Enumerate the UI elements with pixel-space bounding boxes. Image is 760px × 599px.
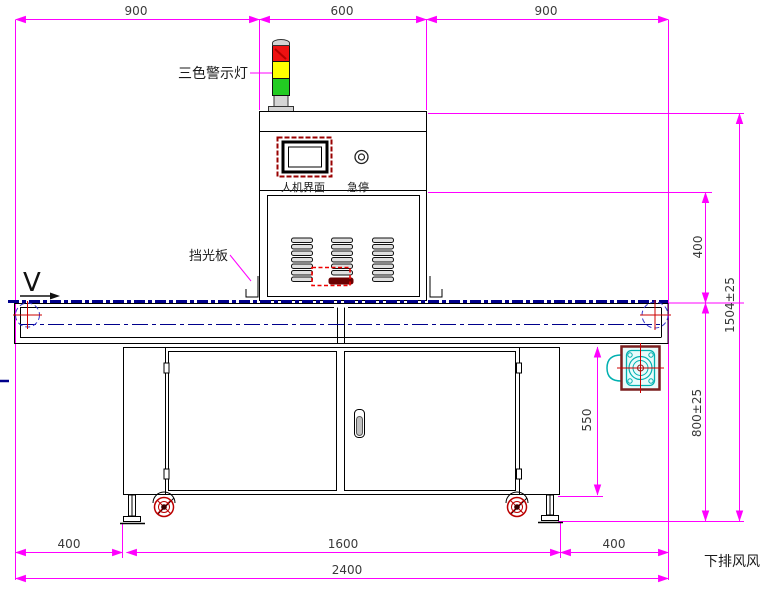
left-roller xyxy=(13,301,42,329)
lamp-green xyxy=(273,79,290,96)
tricolor-warning-light xyxy=(269,40,294,112)
dimension-labels: 900 600 900 400 1504±25 800±25 550 400 1… xyxy=(58,4,737,577)
hinge xyxy=(517,469,522,479)
light-shield-label: 挡光板 xyxy=(189,249,228,264)
dim-top-right: 900 xyxy=(535,4,558,18)
hinge xyxy=(517,363,522,373)
flow-direction-arrow: V xyxy=(20,268,60,300)
dim-bottom-total: 2400 xyxy=(332,563,363,577)
lamp-yellow xyxy=(273,62,290,79)
dim-top-center: 600 xyxy=(331,4,354,18)
cabinet xyxy=(124,348,560,495)
dim-bottom-right2: 400 xyxy=(603,537,626,551)
cabinet-door-right xyxy=(345,352,516,491)
dim-right-400: 400 xyxy=(691,236,705,259)
caster-right xyxy=(506,492,528,517)
caster-left xyxy=(153,492,175,517)
light-shield-leader xyxy=(230,255,251,281)
leveling-foot-left xyxy=(120,495,145,524)
hinge xyxy=(164,469,169,479)
dim-right-1504: 1504±25 xyxy=(723,277,737,333)
door-handle xyxy=(355,410,365,438)
drive-motor xyxy=(607,343,664,393)
arrowhead xyxy=(50,293,60,300)
machine-head: 人机界面 急停 xyxy=(260,112,427,301)
dim-right-800: 800±25 xyxy=(690,389,704,437)
cabinet-door-left xyxy=(169,352,337,491)
conveyor xyxy=(8,300,671,344)
dim-top-left: 900 xyxy=(125,4,148,18)
dim-bottom-left: 400 xyxy=(58,537,81,551)
hmi-label: 人机界面 xyxy=(281,180,325,194)
estop-label: 急停 xyxy=(347,180,369,194)
machine-elevation-drawing: 900 600 900 400 1504±25 800±25 550 400 1… xyxy=(0,0,760,599)
dim-bottom-center: 1600 xyxy=(328,537,359,551)
cad-drawing-canvas: 900 600 900 400 1504±25 800±25 550 400 1… xyxy=(0,0,760,599)
warning-light-label: 三色警示灯 xyxy=(178,65,248,82)
dim-550: 550 xyxy=(580,409,594,432)
hinge xyxy=(164,363,169,373)
leveling-foot-right xyxy=(538,495,563,523)
right-roller xyxy=(640,300,671,330)
vent-grilles xyxy=(292,238,394,284)
direction-letter: V xyxy=(23,268,41,298)
estop-button xyxy=(355,151,368,164)
exhaust-note: 下排风风 xyxy=(704,554,760,570)
